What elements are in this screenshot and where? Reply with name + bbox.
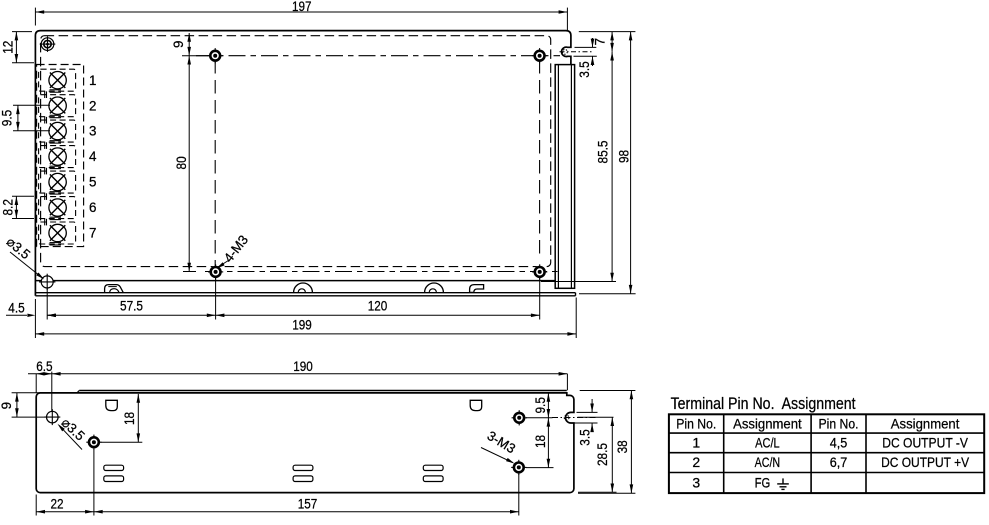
svg-text:157: 157 <box>298 496 318 511</box>
svg-text:7: 7 <box>89 226 96 241</box>
svg-text:4: 4 <box>89 149 97 164</box>
svg-text:6,7: 6,7 <box>830 454 848 470</box>
svg-text:FG: FG <box>755 474 771 490</box>
svg-text:AC/N: AC/N <box>755 454 781 470</box>
svg-text:57.5: 57.5 <box>120 299 143 314</box>
svg-text:3: 3 <box>692 474 700 490</box>
svg-text:120: 120 <box>368 299 388 314</box>
svg-text:9: 9 <box>0 402 14 409</box>
svg-text:80: 80 <box>174 156 189 169</box>
svg-text:18: 18 <box>122 412 137 425</box>
svg-text:7: 7 <box>592 38 607 45</box>
svg-text:3.5: 3.5 <box>578 429 593 445</box>
svg-text:190: 190 <box>293 359 313 374</box>
svg-text:⌀3.5: ⌀3.5 <box>4 234 34 262</box>
svg-text:DC OUTPUT -V: DC OUTPUT -V <box>882 435 968 451</box>
svg-text:3.5: 3.5 <box>577 61 592 77</box>
svg-text:9.5: 9.5 <box>0 110 14 126</box>
svg-text:12: 12 <box>1 41 16 54</box>
svg-text:2: 2 <box>89 98 96 113</box>
svg-text:18: 18 <box>533 435 548 448</box>
svg-text:1: 1 <box>89 73 96 88</box>
svg-text:197: 197 <box>292 0 312 14</box>
svg-text:DC OUTPUT +V: DC OUTPUT +V <box>881 454 970 470</box>
svg-text:Terminal Pin No. Assignment: Terminal Pin No. Assignment <box>671 395 856 413</box>
svg-text:4-M3: 4-M3 <box>221 232 251 265</box>
svg-text:2: 2 <box>692 454 700 470</box>
svg-text:4,5: 4,5 <box>830 435 848 451</box>
svg-text:Pin No.: Pin No. <box>676 415 716 431</box>
svg-text:9.5: 9.5 <box>533 397 548 413</box>
svg-text:4.5: 4.5 <box>8 301 24 316</box>
svg-text:6.5: 6.5 <box>36 359 52 374</box>
svg-text:28.5: 28.5 <box>595 443 610 466</box>
svg-text:Pin No.: Pin No. <box>819 415 859 431</box>
svg-text:38: 38 <box>615 440 630 453</box>
svg-text:8.2: 8.2 <box>1 199 16 215</box>
svg-text:5: 5 <box>89 175 96 190</box>
svg-text:3: 3 <box>89 124 96 139</box>
svg-text:199: 199 <box>292 318 312 333</box>
svg-text:AC/L: AC/L <box>755 435 780 451</box>
svg-text:Assignment: Assignment <box>733 415 802 431</box>
svg-text:85.5: 85.5 <box>596 141 611 164</box>
svg-text:Assignment: Assignment <box>891 415 960 431</box>
svg-text:22: 22 <box>50 496 63 511</box>
svg-text:1: 1 <box>692 435 700 451</box>
svg-text:9: 9 <box>171 41 186 48</box>
svg-text:98: 98 <box>617 150 632 163</box>
svg-text:6: 6 <box>89 200 96 215</box>
